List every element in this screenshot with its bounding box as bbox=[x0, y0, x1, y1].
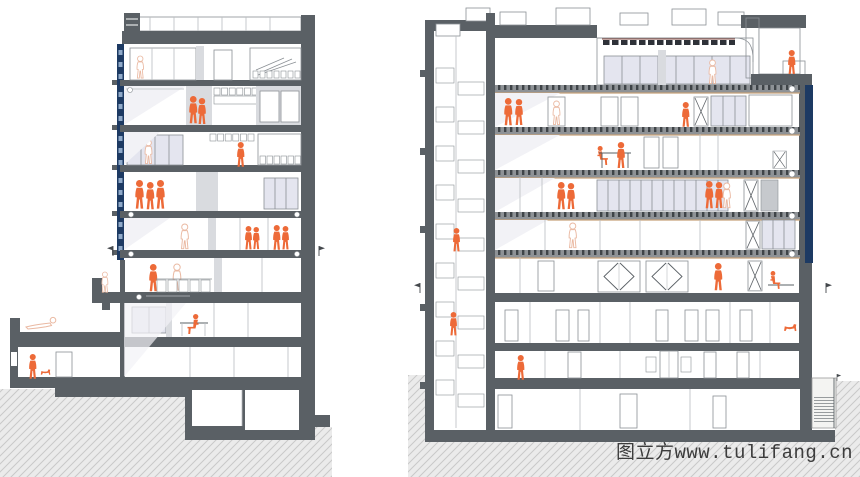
person-figure-icon bbox=[282, 226, 289, 249]
elevator-shaft-icon bbox=[748, 261, 762, 291]
elevator-shaft-icon bbox=[773, 151, 786, 168]
person-figure-icon bbox=[237, 142, 244, 167]
lounging-person-icon bbox=[26, 317, 56, 329]
entry-sidelight bbox=[646, 357, 656, 372]
person-figure-icon bbox=[135, 180, 143, 209]
person-figure-icon bbox=[273, 225, 280, 250]
person-figure-icon bbox=[597, 146, 607, 165]
cat-figure-icon bbox=[784, 324, 796, 331]
stair-flights bbox=[458, 82, 484, 407]
person-figure-icon bbox=[682, 102, 689, 127]
watermark: 图立方www.tulifang.cn bbox=[616, 441, 853, 464]
right-curtain-edge bbox=[805, 85, 813, 263]
person-figure-icon bbox=[245, 226, 252, 249]
right-floor-3 bbox=[495, 134, 786, 170]
person-figure-icon bbox=[557, 182, 565, 209]
stair-landings bbox=[436, 68, 454, 395]
left-floor-2 bbox=[124, 86, 301, 125]
right-floor-6 bbox=[520, 257, 794, 293]
wood-screen bbox=[749, 95, 792, 126]
person-figure-icon bbox=[770, 271, 780, 289]
right-floor-4 bbox=[495, 177, 778, 212]
left-roof bbox=[122, 13, 315, 44]
section-drawing-canvas: 图立方www.tulifang.cn bbox=[0, 0, 860, 477]
entry-sidelight bbox=[681, 357, 691, 372]
survey-marker-icon bbox=[319, 246, 325, 256]
left-floor-3 bbox=[127, 134, 301, 167]
person-figure-icon bbox=[146, 182, 154, 209]
person-figure-icon bbox=[29, 354, 36, 379]
dog-figure-icon bbox=[41, 369, 51, 374]
person-figure-icon bbox=[617, 142, 625, 168]
person-figure-icon bbox=[517, 355, 524, 380]
person-figure-icon bbox=[714, 263, 722, 290]
right-floor-2 bbox=[495, 93, 792, 127]
survey-marker-icon bbox=[826, 283, 832, 293]
person-figure-icon bbox=[149, 264, 157, 291]
elevator-icon bbox=[646, 261, 688, 292]
grate-icon bbox=[814, 396, 834, 422]
person-figure-icon bbox=[181, 224, 188, 249]
lightwell bbox=[812, 378, 836, 428]
right-floor-8 bbox=[517, 351, 760, 380]
right-building-section bbox=[414, 8, 841, 442]
elevator-shaft-icon bbox=[694, 97, 708, 126]
elevator-shaft-icon bbox=[746, 221, 760, 249]
left-curtain-wall bbox=[112, 44, 125, 377]
elevator-icon bbox=[598, 261, 640, 292]
section-drawing-page: 图立方www.tulifang.cn bbox=[0, 0, 860, 477]
elevator-shaft-icon bbox=[744, 180, 758, 211]
person-figure-icon bbox=[515, 99, 523, 125]
right-floor-5 bbox=[495, 220, 795, 250]
survey-marker-icon bbox=[837, 374, 841, 381]
person-figure-icon bbox=[102, 272, 108, 292]
person-figure-icon bbox=[188, 314, 199, 334]
left-right-wall bbox=[301, 15, 315, 388]
survey-marker-icon bbox=[414, 283, 420, 293]
person-figure-icon bbox=[504, 98, 512, 125]
person-figure-icon bbox=[569, 223, 576, 248]
right-floor-7 bbox=[505, 302, 796, 343]
person-figure-icon bbox=[567, 183, 575, 209]
left-floor-1 bbox=[130, 46, 301, 80]
stair-core bbox=[420, 8, 495, 440]
person-figure-icon bbox=[156, 180, 164, 209]
left-building-section bbox=[10, 13, 330, 440]
right-roof-penthouse bbox=[495, 8, 812, 88]
person-figure-icon bbox=[253, 227, 259, 249]
